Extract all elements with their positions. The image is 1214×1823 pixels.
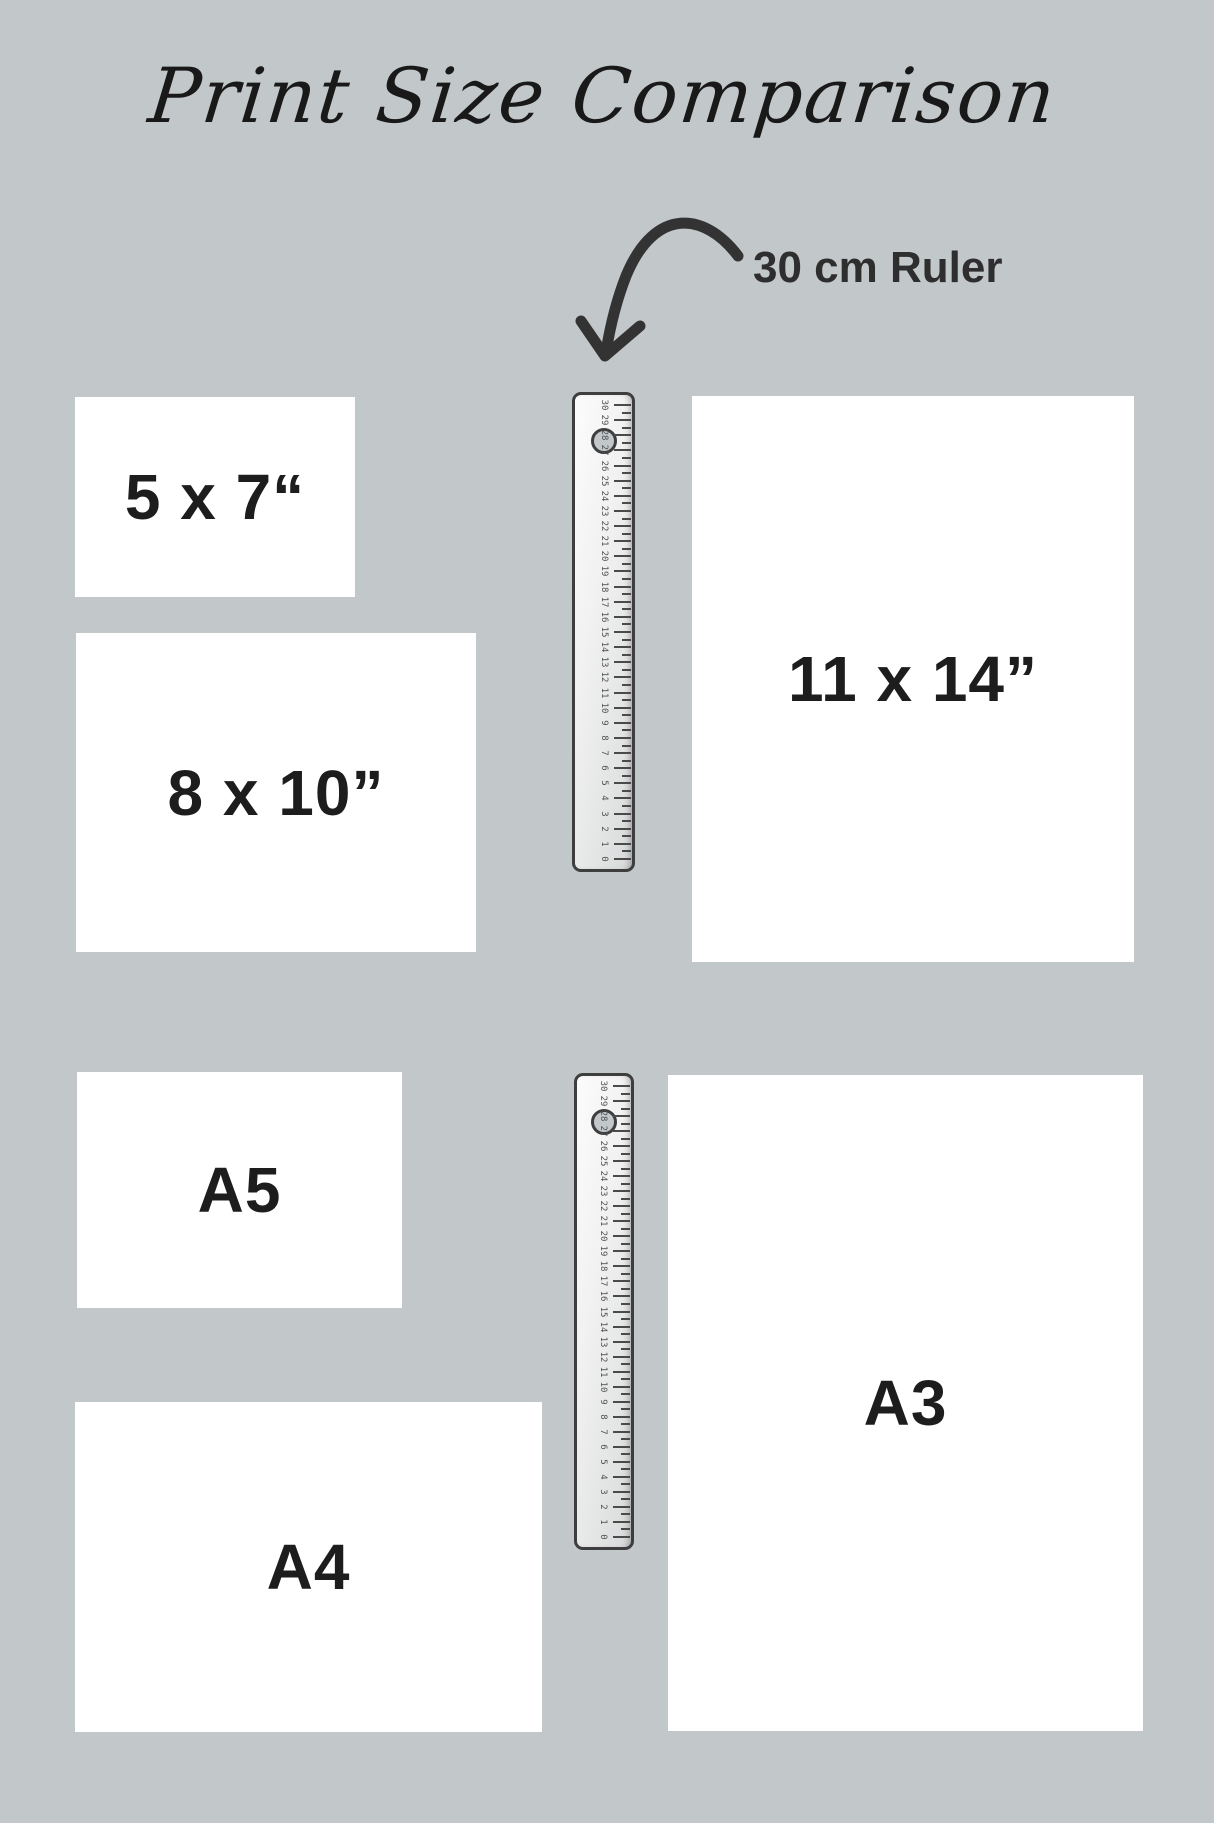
ruler-tick-halfcm <box>621 1483 630 1485</box>
ruler-tick-halfcm <box>621 1183 630 1185</box>
ruler-number: 11 <box>599 686 609 700</box>
ruler-tick-halfcm <box>622 502 631 504</box>
ruler-tick-cm <box>614 828 631 830</box>
ruler-tick-halfcm <box>622 427 631 429</box>
ruler-tick-halfcm <box>622 835 631 837</box>
ruler-tick-halfcm <box>621 1408 630 1410</box>
ruler-tick-cm <box>613 1085 630 1087</box>
ruler-number: 0 <box>598 1530 608 1544</box>
ruler-tick-cm <box>613 1521 630 1523</box>
ruler-tick-halfcm <box>621 1108 630 1110</box>
ruler-tick-cm <box>614 510 631 512</box>
ruler-tick-cm <box>613 1190 630 1192</box>
ruler-tick-cm <box>614 752 631 754</box>
ruler-tick-halfcm <box>622 578 631 580</box>
ruler-tick-halfcm <box>622 457 631 459</box>
ruler-tick-cm <box>614 813 631 815</box>
ruler-tick-halfcm <box>622 518 631 520</box>
ruler-tick-cm <box>614 843 631 845</box>
ruler-tick-cm <box>614 570 631 572</box>
ruler-number: 15 <box>598 1305 608 1319</box>
ruler-tick-halfcm <box>621 1378 630 1380</box>
ruler-number: 10 <box>599 701 609 715</box>
ruler-tick-halfcm <box>622 729 631 731</box>
ruler-tick-cm <box>613 1356 630 1358</box>
ruler-tick-halfcm <box>622 563 631 565</box>
page-title: Print Size Comparison <box>143 51 1061 140</box>
ruler-tick-halfcm <box>622 669 631 671</box>
ruler-tick-halfcm <box>621 1228 630 1230</box>
ruler-number: 22 <box>599 519 609 533</box>
ruler-tick-cm <box>614 555 631 557</box>
ruler-tick-halfcm <box>622 623 631 625</box>
ruler-tick-cm <box>613 1491 630 1493</box>
ruler-tick-halfcm <box>622 850 631 852</box>
ruler-tick-halfcm <box>622 472 631 474</box>
ruler-tick-halfcm <box>621 1198 630 1200</box>
ruler-tick-cm <box>614 495 631 497</box>
ruler-number: 12 <box>599 670 609 684</box>
ruler-number: 17 <box>599 595 609 609</box>
ruler-tick-cm <box>614 449 631 451</box>
print-size-comparison-graphic: Print Size Comparison 30 cm Ruler 5 x 7“… <box>0 0 1214 1823</box>
ruler-number: 12 <box>598 1350 608 1364</box>
ruler-number: 18 <box>599 580 609 594</box>
page-title-art: Print Size Comparison <box>0 0 1214 190</box>
ruler-top: 0123456789101112131415161718192021222324… <box>572 392 635 872</box>
ruler-number: 1 <box>599 837 609 851</box>
ruler-tick-cm <box>614 601 631 603</box>
ruler-tick-halfcm <box>622 654 631 656</box>
ruler-number: 4 <box>599 791 609 805</box>
ruler-tick-halfcm <box>621 1393 630 1395</box>
ruler-tick-cm <box>614 782 631 784</box>
ruler-tick-halfcm <box>621 1138 630 1140</box>
ruler-tick-halfcm <box>621 1468 630 1470</box>
ruler-tick-cm <box>614 540 631 542</box>
ruler-number: 21 <box>598 1214 608 1228</box>
ruler-number: 28 <box>599 428 609 442</box>
ruler-tick-halfcm <box>622 608 631 610</box>
ruler-tick-halfcm <box>621 1243 630 1245</box>
print-size-rect-a4: A4 <box>75 1402 542 1732</box>
ruler-tick-halfcm <box>622 533 631 535</box>
ruler-tick-cm <box>613 1130 630 1132</box>
ruler-number: 1 <box>598 1515 608 1529</box>
ruler-tick-cm <box>614 586 631 588</box>
ruler-tick-halfcm <box>622 442 631 444</box>
ruler-tick-cm <box>613 1250 630 1252</box>
ruler-tick-halfcm <box>621 1288 630 1290</box>
ruler-tick-halfcm <box>621 1513 630 1515</box>
ruler-number: 2 <box>599 822 609 836</box>
ruler-tick-halfcm <box>621 1168 630 1170</box>
ruler-number: 22 <box>598 1199 608 1213</box>
print-size-label: A3 <box>864 1366 948 1440</box>
ruler-tick-cm <box>614 434 631 436</box>
ruler-tick-cm <box>614 404 631 406</box>
print-size-label: A4 <box>267 1530 351 1604</box>
ruler-tick-halfcm <box>622 760 631 762</box>
ruler-tick-halfcm <box>622 684 631 686</box>
ruler-tick-cm <box>613 1205 630 1207</box>
ruler-tick-halfcm <box>621 1318 630 1320</box>
ruler-number: 14 <box>598 1320 608 1334</box>
ruler-tick-cm <box>614 525 631 527</box>
ruler-tick-cm <box>613 1536 630 1538</box>
ruler-number: 30 <box>598 1079 608 1093</box>
ruler-tick-cm <box>614 858 631 860</box>
print-size-rect-11x14: 11 x 14” <box>692 396 1134 962</box>
ruler-tick-cm <box>614 646 631 648</box>
print-size-rect-8x10: 8 x 10” <box>76 633 476 952</box>
ruler-tick-cm <box>614 692 631 694</box>
ruler-number: 23 <box>599 504 609 518</box>
ruler-number: 11 <box>598 1365 608 1379</box>
ruler-tick-cm <box>614 722 631 724</box>
print-size-rect-a5: A5 <box>77 1072 402 1308</box>
ruler-tick-halfcm <box>622 639 631 641</box>
ruler-number: 29 <box>598 1094 608 1108</box>
ruler-tick-halfcm <box>621 1438 630 1440</box>
ruler-tick-cm <box>613 1145 630 1147</box>
ruler-tick-halfcm <box>622 548 631 550</box>
ruler-number: 5 <box>598 1455 608 1469</box>
ruler-tick-cm <box>613 1431 630 1433</box>
ruler-number: 20 <box>599 549 609 563</box>
ruler-tick-halfcm <box>621 1528 630 1530</box>
ruler-tick-halfcm <box>621 1363 630 1365</box>
ruler-tick-cm <box>614 616 631 618</box>
ruler-number: 4 <box>598 1470 608 1484</box>
ruler-number: 27 <box>598 1124 608 1138</box>
print-size-label: 5 x 7“ <box>125 460 305 534</box>
ruler-tick-halfcm <box>621 1258 630 1260</box>
ruler-tick-cm <box>613 1100 630 1102</box>
ruler-tick-cm <box>613 1295 630 1297</box>
ruler-tick-cm <box>613 1265 630 1267</box>
ruler-number: 7 <box>598 1425 608 1439</box>
ruler-tick-halfcm <box>621 1498 630 1500</box>
ruler-tick-cm <box>614 676 631 678</box>
ruler-tick-halfcm <box>621 1348 630 1350</box>
ruler-tick-cm <box>614 707 631 709</box>
ruler-number: 25 <box>598 1154 608 1168</box>
ruler-number: 14 <box>599 640 609 654</box>
ruler-tick-cm <box>614 737 631 739</box>
ruler-tick-cm <box>613 1220 630 1222</box>
ruler-number: 20 <box>598 1229 608 1243</box>
ruler-number: 28 <box>598 1109 608 1123</box>
ruler-number: 18 <box>598 1259 608 1273</box>
print-size-label: 11 x 14” <box>788 642 1038 716</box>
ruler-tick-cm <box>613 1401 630 1403</box>
ruler-number: 26 <box>598 1139 608 1153</box>
ruler-tick-halfcm <box>621 1123 630 1125</box>
ruler-tick-cm <box>614 631 631 633</box>
ruler-number: 9 <box>599 716 609 730</box>
print-size-label: 8 x 10” <box>168 756 385 830</box>
ruler-annotation: 30 cm Ruler <box>753 243 1002 293</box>
ruler-tick-cm <box>614 465 631 467</box>
ruler-number: 2 <box>598 1500 608 1514</box>
ruler-number: 24 <box>599 489 609 503</box>
ruler-tick-halfcm <box>622 714 631 716</box>
ruler-tick-cm <box>613 1446 630 1448</box>
ruler-tick-cm <box>614 480 631 482</box>
ruler-number: 8 <box>599 731 609 745</box>
ruler-tick-cm <box>614 419 631 421</box>
ruler-tick-halfcm <box>622 790 631 792</box>
ruler-number: 9 <box>598 1395 608 1409</box>
ruler-tick-halfcm <box>622 487 631 489</box>
ruler-tick-cm <box>613 1115 630 1117</box>
ruler-number: 21 <box>599 534 609 548</box>
ruler-tick-halfcm <box>621 1423 630 1425</box>
ruler-number: 27 <box>599 443 609 457</box>
ruler-tick-cm <box>613 1311 630 1313</box>
ruler-number: 25 <box>599 474 609 488</box>
ruler-tick-cm <box>613 1326 630 1328</box>
print-size-label: A5 <box>198 1153 282 1227</box>
ruler-number: 7 <box>599 746 609 760</box>
ruler-number: 24 <box>598 1169 608 1183</box>
ruler-number: 10 <box>598 1380 608 1394</box>
ruler-tick-cm <box>613 1160 630 1162</box>
ruler-number: 23 <box>598 1184 608 1198</box>
ruler-tick-halfcm <box>622 820 631 822</box>
ruler-number: 5 <box>599 776 609 790</box>
ruler-number: 6 <box>598 1440 608 1454</box>
ruler-number: 29 <box>599 413 609 427</box>
ruler-tick-halfcm <box>621 1213 630 1215</box>
ruler-tick-halfcm <box>621 1093 630 1095</box>
ruler-number: 15 <box>599 625 609 639</box>
ruler-number: 3 <box>598 1485 608 1499</box>
ruler-number: 13 <box>598 1335 608 1349</box>
ruler-tick-halfcm <box>622 593 631 595</box>
ruler-tick-cm <box>613 1235 630 1237</box>
ruler-tick-halfcm <box>621 1333 630 1335</box>
ruler-tick-cm <box>614 767 631 769</box>
ruler-tick-halfcm <box>621 1453 630 1455</box>
ruler-tick-halfcm <box>622 805 631 807</box>
ruler-tick-halfcm <box>621 1303 630 1305</box>
ruler-tick-halfcm <box>621 1273 630 1275</box>
ruler-number: 3 <box>599 807 609 821</box>
ruler-tick-cm <box>613 1476 630 1478</box>
ruler-number: 8 <box>598 1410 608 1424</box>
ruler-number: 26 <box>599 459 609 473</box>
ruler-number: 13 <box>599 655 609 669</box>
ruler-number: 16 <box>598 1289 608 1303</box>
ruler-number: 6 <box>599 761 609 775</box>
ruler-number: 19 <box>598 1244 608 1258</box>
ruler-number: 17 <box>598 1274 608 1288</box>
ruler-tick-cm <box>613 1280 630 1282</box>
ruler-tick-halfcm <box>622 699 631 701</box>
ruler-tick-cm <box>613 1175 630 1177</box>
ruler-tick-cm <box>614 797 631 799</box>
ruler-tick-cm <box>613 1386 630 1388</box>
ruler-tick-cm <box>613 1341 630 1343</box>
ruler-tick-halfcm <box>622 745 631 747</box>
ruler-number: 16 <box>599 610 609 624</box>
ruler-tick-cm <box>613 1461 630 1463</box>
ruler-tick-halfcm <box>621 1153 630 1155</box>
ruler-number: 30 <box>599 398 609 412</box>
print-size-rect-5x7: 5 x 7“ <box>75 397 355 597</box>
print-size-rect-a3: A3 <box>668 1075 1143 1731</box>
ruler-tick-cm <box>614 661 631 663</box>
ruler-number: 0 <box>599 852 609 866</box>
ruler-tick-halfcm <box>622 412 631 414</box>
ruler-number: 19 <box>599 564 609 578</box>
ruler-tick-cm <box>613 1416 630 1418</box>
ruler-bottom: 0123456789101112131415161718192021222324… <box>574 1073 634 1550</box>
ruler-tick-cm <box>613 1506 630 1508</box>
ruler-tick-halfcm <box>622 775 631 777</box>
ruler-tick-cm <box>613 1371 630 1373</box>
